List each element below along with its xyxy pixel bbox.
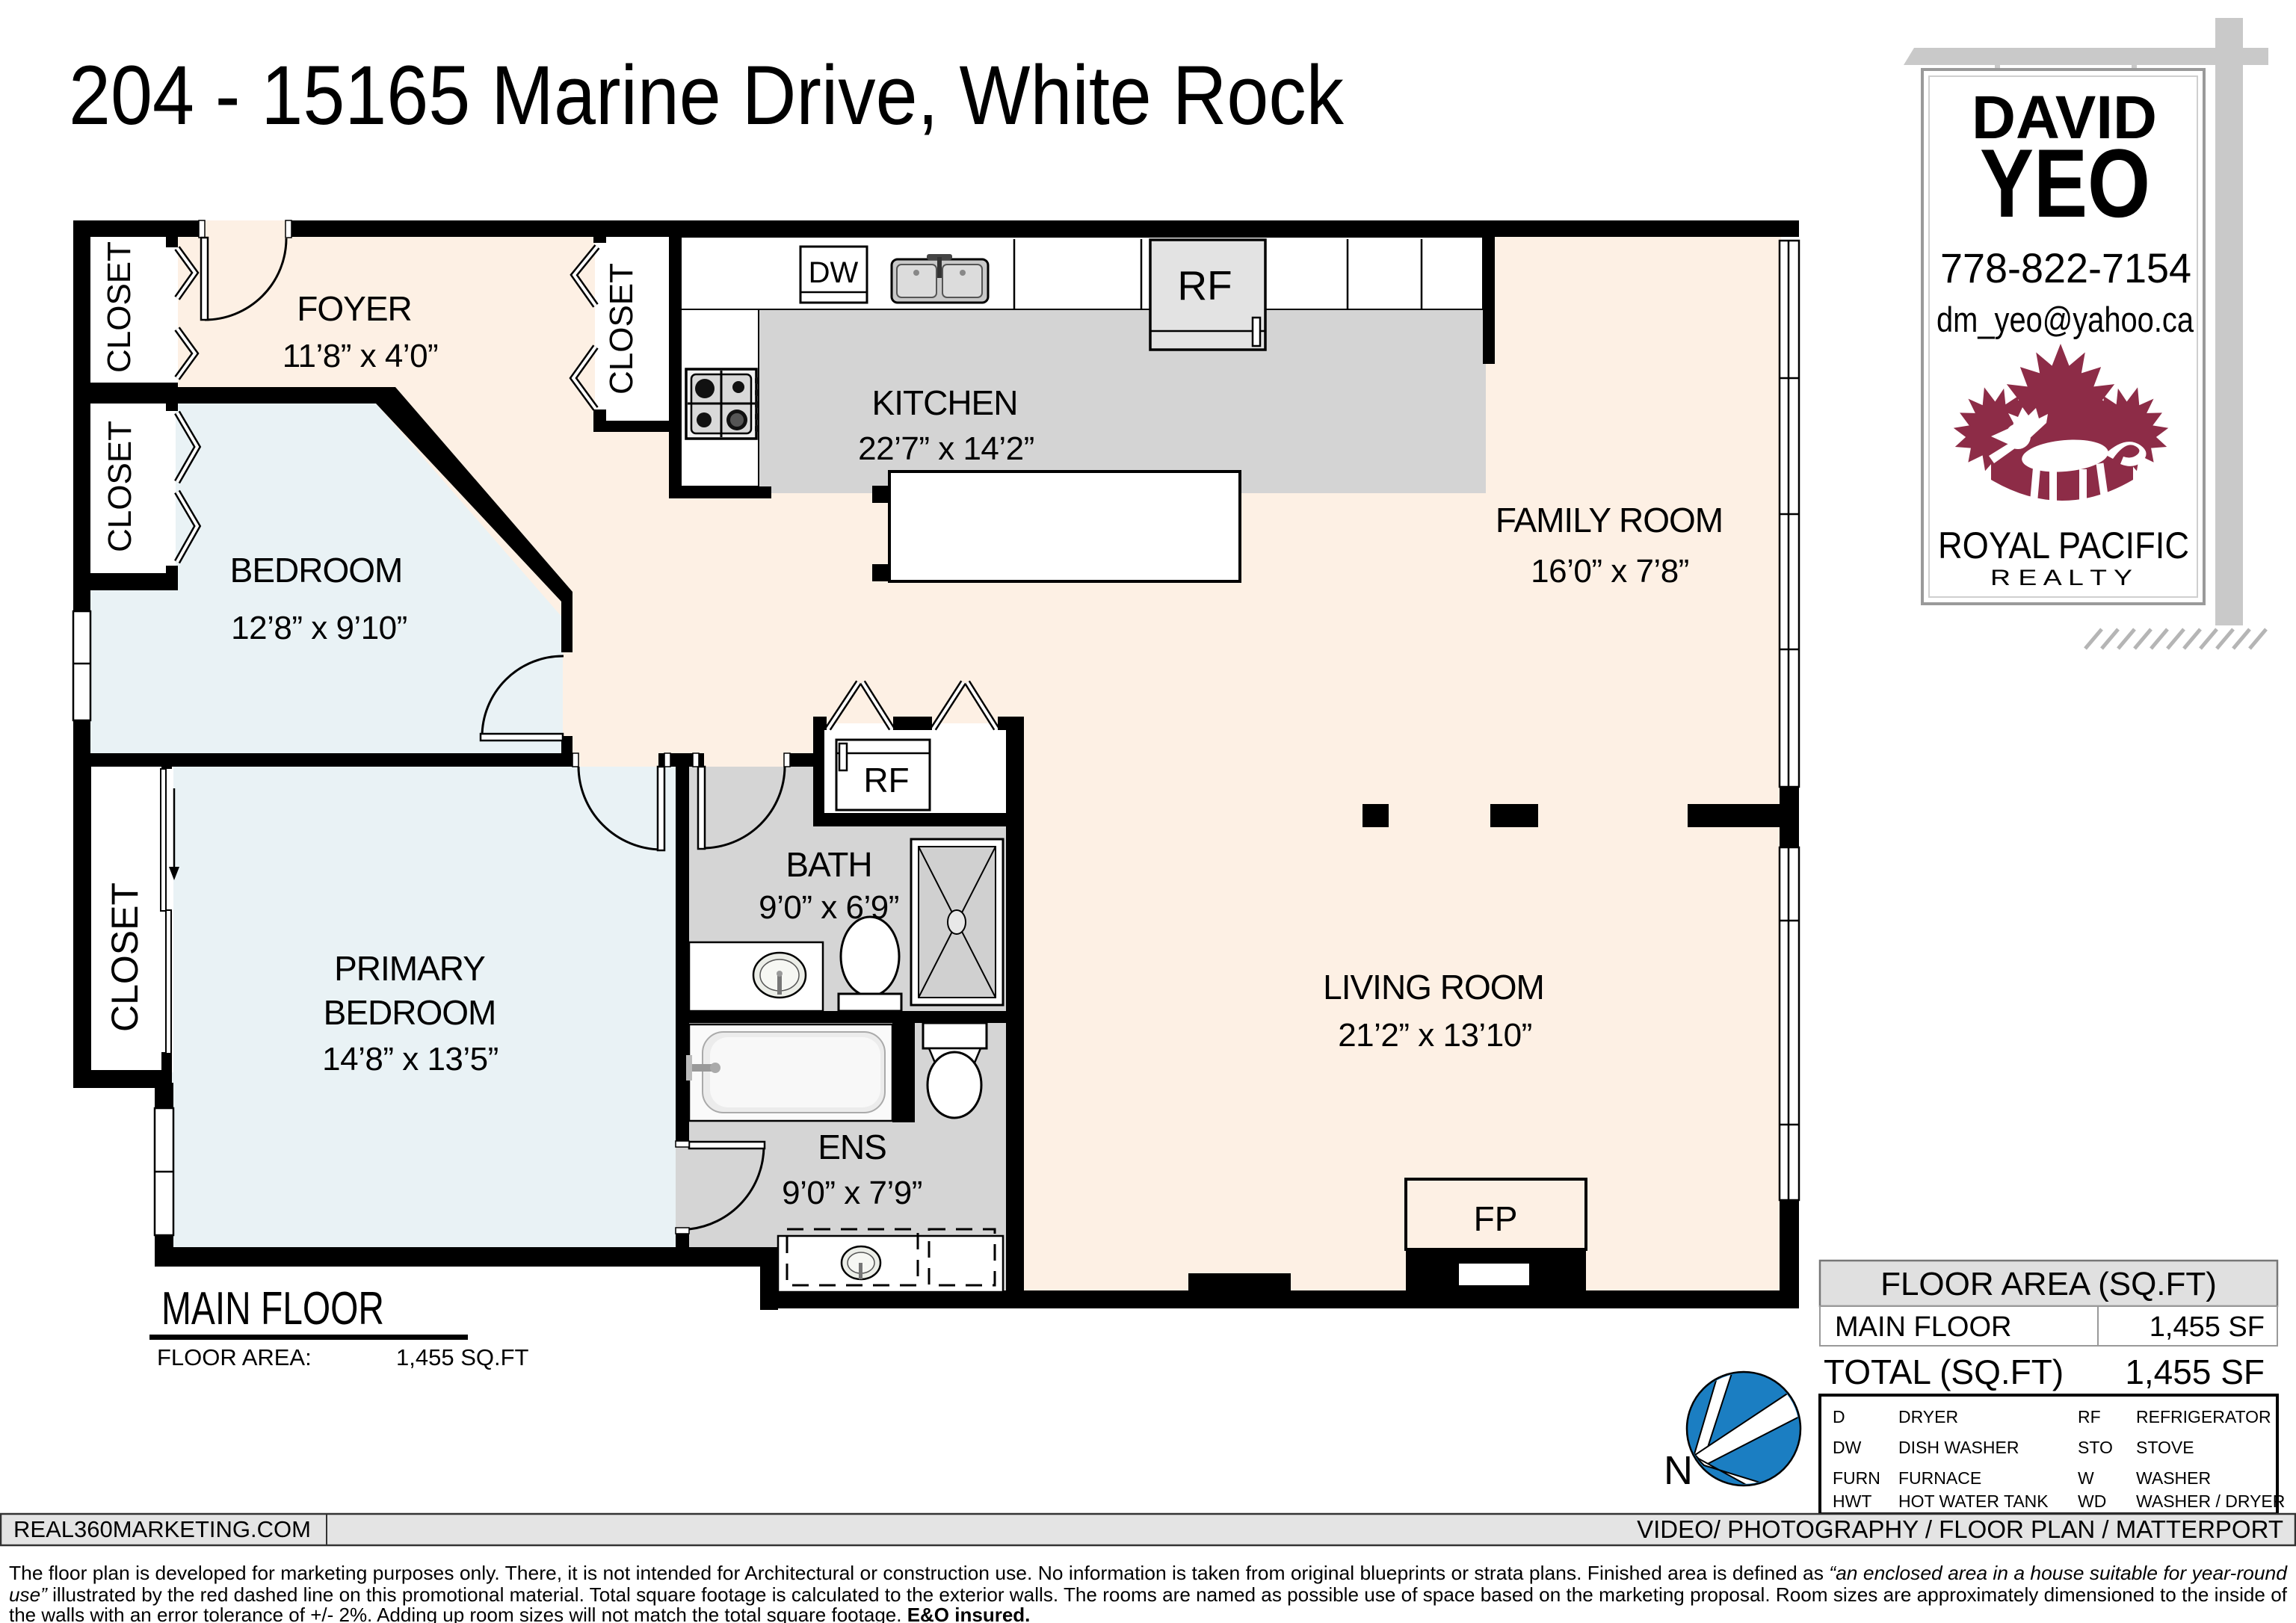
svg-text:FURNACE: FURNACE bbox=[1898, 1468, 1981, 1488]
svg-text:BATH: BATH bbox=[786, 845, 871, 884]
svg-text:11’8” x 4’0”: 11’8” x 4’0” bbox=[283, 338, 438, 374]
svg-text:LIVING ROOM: LIVING ROOM bbox=[1323, 968, 1544, 1007]
svg-text:HWT: HWT bbox=[1833, 1491, 1871, 1511]
svg-text:MAIN FLOOR: MAIN FLOOR bbox=[1835, 1311, 2011, 1343]
svg-text:The floor plan is developed fo: The floor plan is developed for marketin… bbox=[9, 1562, 2289, 1584]
svg-text:1,455 SF: 1,455 SF bbox=[2150, 1311, 2265, 1343]
svg-text:the walls with an error tolera: the walls with an error tolerance of +/-… bbox=[9, 1604, 1030, 1623]
svg-text:REAL360MARKETING.COM: REAL360MARKETING.COM bbox=[13, 1516, 311, 1542]
svg-text:REFRIGERATOR: REFRIGERATOR bbox=[2136, 1407, 2271, 1426]
svg-text:CLOSET: CLOSET bbox=[603, 263, 640, 395]
svg-text:W: W bbox=[2078, 1468, 2094, 1488]
svg-text:dm_yeo@yahoo.ca: dm_yeo@yahoo.ca bbox=[1937, 300, 2194, 339]
svg-text:DW: DW bbox=[809, 256, 859, 289]
svg-text:RF: RF bbox=[1177, 262, 1232, 309]
svg-text:DRYER: DRYER bbox=[1898, 1407, 1958, 1426]
svg-text:ROYAL PACIFIC: ROYAL PACIFIC bbox=[1938, 525, 2189, 566]
svg-text:VIDEO/ PHOTOGRAPHY / FLOOR PLA: VIDEO/ PHOTOGRAPHY / FLOOR PLAN / MATTER… bbox=[1637, 1515, 2283, 1543]
svg-text:1,455 SQ.FT: 1,455 SQ.FT bbox=[396, 1344, 529, 1370]
svg-text:WASHER: WASHER bbox=[2136, 1468, 2211, 1488]
svg-text:TOTAL (SQ.FT): TOTAL (SQ.FT) bbox=[1824, 1352, 2064, 1391]
svg-text:9’0” x 7’9”: 9’0” x 7’9” bbox=[782, 1175, 922, 1211]
svg-text:DISH WASHER: DISH WASHER bbox=[1898, 1438, 2019, 1457]
svg-text:PRIMARY: PRIMARY bbox=[334, 949, 485, 988]
svg-text:RF: RF bbox=[863, 761, 909, 800]
svg-text:HOT WATER TANK: HOT WATER TANK bbox=[1898, 1491, 2049, 1511]
svg-text:22’7” x 14’2”: 22’7” x 14’2” bbox=[858, 430, 1034, 467]
svg-text:YEO: YEO bbox=[1980, 129, 2150, 238]
svg-text:STO: STO bbox=[2078, 1438, 2113, 1457]
svg-text:use” illustrated by the red da: use” illustrated by the red dashed line … bbox=[9, 1583, 2288, 1606]
svg-text:R E A L T Y: R E A L T Y bbox=[1990, 566, 2132, 590]
svg-text:MAIN FLOOR: MAIN FLOOR bbox=[161, 1283, 384, 1335]
svg-text:12’8” x 9’10”: 12’8” x 9’10” bbox=[231, 610, 407, 646]
svg-text:KITCHEN: KITCHEN bbox=[872, 383, 1018, 422]
svg-text:FURN: FURN bbox=[1833, 1468, 1880, 1488]
svg-text:778-822-7154: 778-822-7154 bbox=[1940, 244, 2191, 291]
svg-text:N: N bbox=[1664, 1448, 1693, 1493]
svg-text:BEDROOM: BEDROOM bbox=[324, 993, 496, 1032]
svg-text:WD: WD bbox=[2078, 1491, 2106, 1511]
svg-text:ENS: ENS bbox=[818, 1128, 886, 1166]
svg-text:FP: FP bbox=[1474, 1199, 1518, 1238]
svg-text:FLOOR AREA:: FLOOR AREA: bbox=[157, 1344, 312, 1370]
svg-text:D: D bbox=[1833, 1407, 1845, 1426]
svg-text:FLOOR AREA (SQ.FT): FLOOR AREA (SQ.FT) bbox=[1880, 1266, 2217, 1302]
svg-text:204 - 15165 Marine Drive, Whit: 204 - 15165 Marine Drive, White Rock bbox=[69, 49, 1345, 142]
svg-text:DW: DW bbox=[1833, 1438, 1862, 1457]
svg-text:FOYER: FOYER bbox=[297, 289, 411, 328]
svg-text:BEDROOM: BEDROOM bbox=[230, 551, 403, 590]
svg-text:FAMILY ROOM: FAMILY ROOM bbox=[1496, 501, 1723, 540]
svg-text:STOVE: STOVE bbox=[2136, 1438, 2194, 1457]
svg-text:9’0” x 6’9”: 9’0” x 6’9” bbox=[759, 889, 899, 926]
svg-text:CLOSET: CLOSET bbox=[102, 421, 138, 552]
svg-text:WASHER / DRYER: WASHER / DRYER bbox=[2136, 1491, 2285, 1511]
svg-text:21’2” x 13’10”: 21’2” x 13’10” bbox=[1338, 1017, 1532, 1054]
svg-text:CLOSET: CLOSET bbox=[104, 882, 146, 1032]
svg-text:1,455 SF: 1,455 SF bbox=[2125, 1352, 2265, 1391]
svg-text:14’8” x 13’5”: 14’8” x 13’5” bbox=[322, 1041, 499, 1078]
svg-text:16’0” x 7’8”: 16’0” x 7’8” bbox=[1531, 553, 1689, 590]
svg-text:CLOSET: CLOSET bbox=[101, 241, 138, 373]
svg-text:RF: RF bbox=[2078, 1407, 2101, 1426]
